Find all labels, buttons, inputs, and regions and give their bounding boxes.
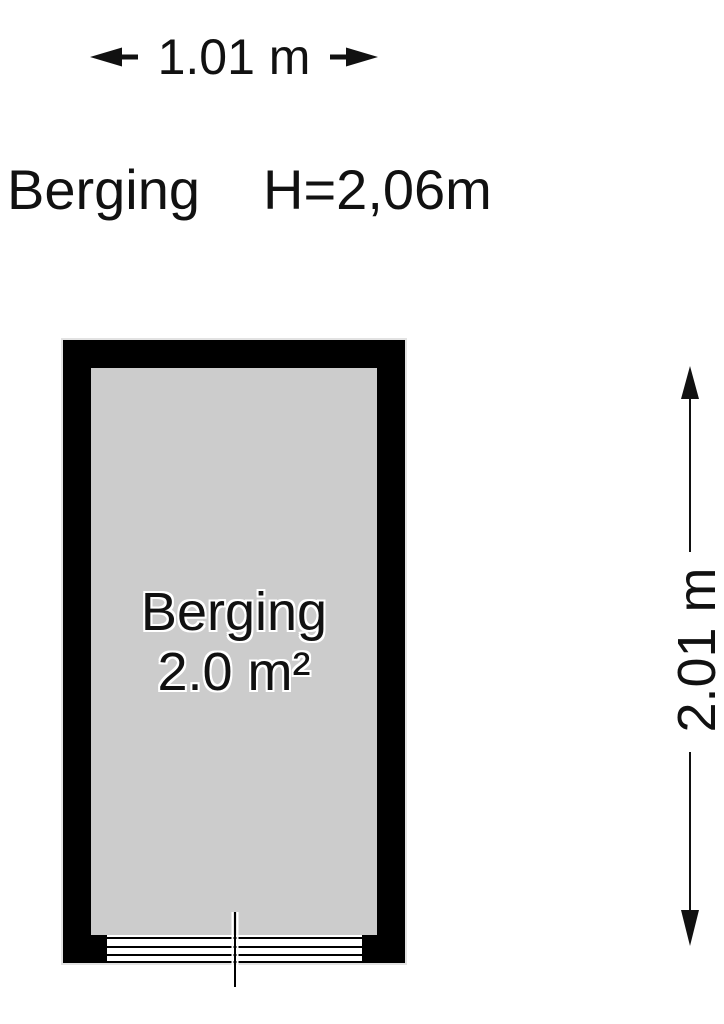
ceiling-height-label: H=2,06m — [263, 158, 492, 222]
arrow-down-icon — [681, 910, 699, 946]
floorplan-canvas: 1.01 m Berging H=2,06m Berging 2.0 m² 2.… — [0, 0, 724, 1024]
height-dimension-label: 2.01 m — [669, 540, 724, 760]
room-label: Berging 2.0 m² — [91, 582, 377, 702]
room-label-area: 2.0 m² — [91, 642, 377, 702]
width-dimension-label: 1.01 m — [114, 31, 354, 83]
door-center-line — [234, 912, 237, 987]
height-dimension-line-bottom — [689, 752, 692, 910]
plan-header: Berging H=2,06m — [7, 158, 492, 222]
room-label-name: Berging — [91, 582, 377, 642]
room-name-heading: Berging — [7, 158, 200, 222]
arrow-right-icon — [330, 46, 378, 68]
arrow-up-icon — [681, 366, 699, 399]
height-dimension-line-top — [689, 396, 692, 552]
